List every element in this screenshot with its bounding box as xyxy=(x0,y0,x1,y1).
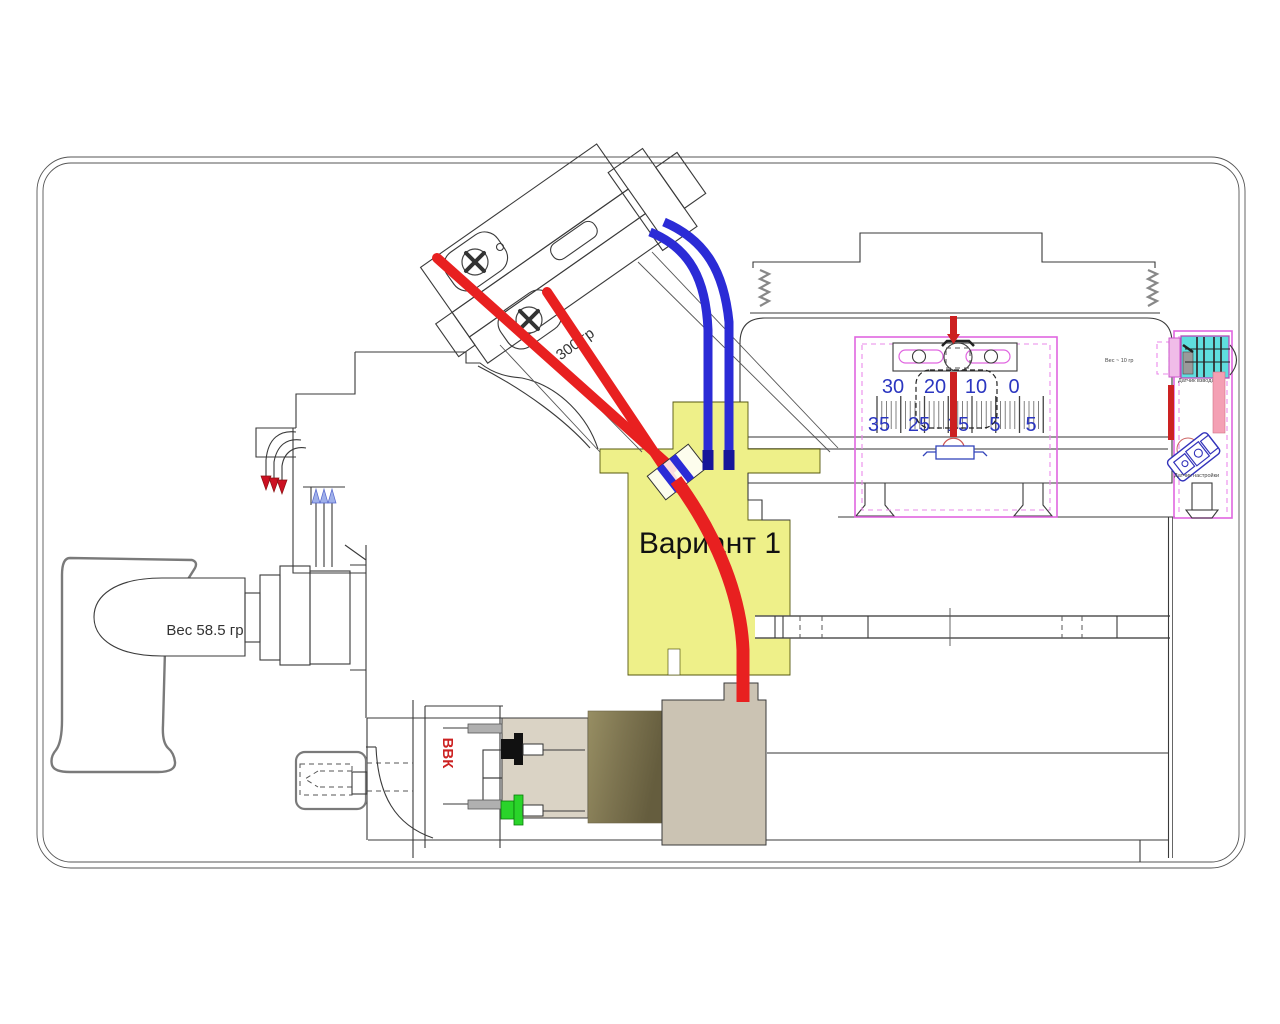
sensor-bottom-label: Датчик настройки xyxy=(1174,472,1219,479)
screw-bottom xyxy=(468,800,502,809)
cad-drawing-canvas: Вес 58.5 гр ВВК xyxy=(0,0,1280,1024)
top-plateau xyxy=(753,233,1155,268)
interior-frame-lines xyxy=(766,517,1173,858)
spring-right xyxy=(1148,270,1157,306)
upper-assembly xyxy=(740,233,1175,517)
scale-number: 5 xyxy=(989,414,1000,436)
gas-flow-red-arrows xyxy=(261,432,306,494)
spring-left xyxy=(760,270,769,306)
technical-drawing: Вес 58.5 гр ВВК xyxy=(0,0,1280,1024)
pivot-dot xyxy=(497,244,504,251)
blue-arrowhead xyxy=(312,489,320,503)
sensor-column: Датчик взвода Датчик настройки xyxy=(1157,331,1237,518)
foot-right xyxy=(1014,483,1052,516)
sensor-top-label: Датчик взвода xyxy=(1178,378,1215,384)
battery-block-taupe xyxy=(662,683,766,845)
red-strip xyxy=(1168,385,1174,440)
handle-weight-label: Вес 58.5 гр xyxy=(166,622,243,639)
scale-number: 20 xyxy=(924,376,946,398)
scale-number: 30 xyxy=(882,376,904,398)
red-arrowhead xyxy=(277,480,287,494)
air-flow-blue-arrows xyxy=(312,489,336,567)
led-dome-arc xyxy=(943,438,964,446)
side-tab-pink xyxy=(1169,338,1180,377)
buffer-cylinder xyxy=(94,578,245,656)
scale-number: 10 xyxy=(965,376,987,398)
scale-number: 25 xyxy=(908,414,930,436)
receiver-outline xyxy=(256,352,598,718)
battery-block-olive xyxy=(588,711,662,823)
yellow-step-detail xyxy=(748,473,790,520)
blue-arrowhead xyxy=(328,489,336,503)
pedestal xyxy=(1186,483,1218,518)
muzzle-box xyxy=(296,752,367,809)
cyan-block-tab xyxy=(1183,352,1193,374)
screw-top xyxy=(468,724,502,733)
linkage-rods xyxy=(500,252,838,452)
pink-strip xyxy=(1213,372,1225,433)
side-tab-dashed xyxy=(1157,342,1169,374)
yellow-slot xyxy=(668,649,680,675)
scale-number: 35 xyxy=(868,414,890,436)
scale-number: 0 xyxy=(1008,376,1019,398)
slider-block xyxy=(893,341,1017,371)
clip-bracket xyxy=(1230,345,1237,375)
scale-number: 5 xyxy=(1025,414,1036,436)
weight-note-label: Вес ~ 10 гр xyxy=(1105,358,1133,364)
blue-arrowhead xyxy=(320,489,328,503)
guide-rod xyxy=(755,608,1170,646)
phillips-screw-1 xyxy=(462,249,488,275)
bbk-label: ВВК xyxy=(439,738,456,770)
stock-connector-steps xyxy=(245,565,366,670)
